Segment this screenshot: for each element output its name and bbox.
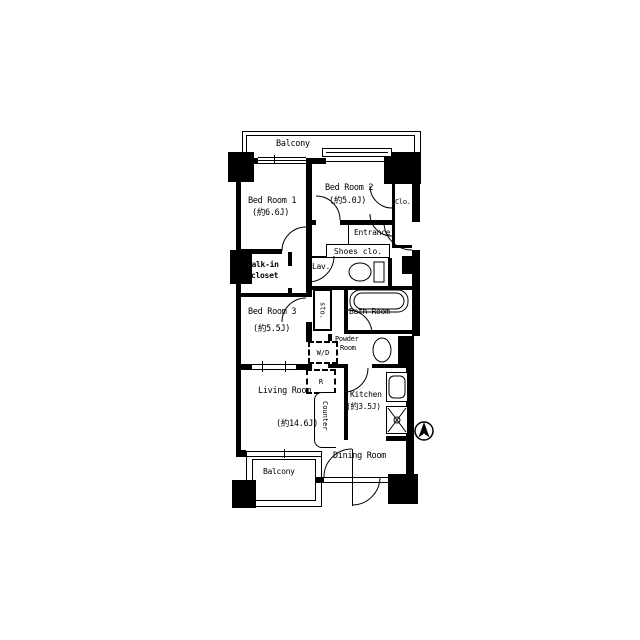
floorplan: Balcony	[0, 0, 640, 640]
toilet-icon	[374, 262, 384, 282]
kitchen-sink-icon	[389, 376, 405, 398]
toilet-icon	[349, 263, 371, 281]
floorplan-graphics	[0, 0, 640, 640]
sink-icon	[373, 338, 391, 362]
door-arc-hall	[308, 256, 334, 282]
door-arc-terrace	[352, 477, 380, 505]
door-arc-bedroom2	[316, 196, 340, 220]
bifold-door-closet	[370, 214, 392, 236]
door-arc-bath	[348, 310, 372, 334]
north-compass-icon	[419, 422, 430, 438]
stove-icon	[388, 408, 406, 432]
door-arc-terrace	[324, 449, 352, 477]
door-arc-entrance	[384, 222, 412, 250]
door-arc-kitchen	[344, 368, 368, 392]
bathtub-icon	[354, 293, 404, 309]
bifold-door-closet	[370, 186, 392, 208]
door-arc-bedroom3	[282, 298, 306, 322]
door-arc-bedroom1	[282, 227, 306, 251]
